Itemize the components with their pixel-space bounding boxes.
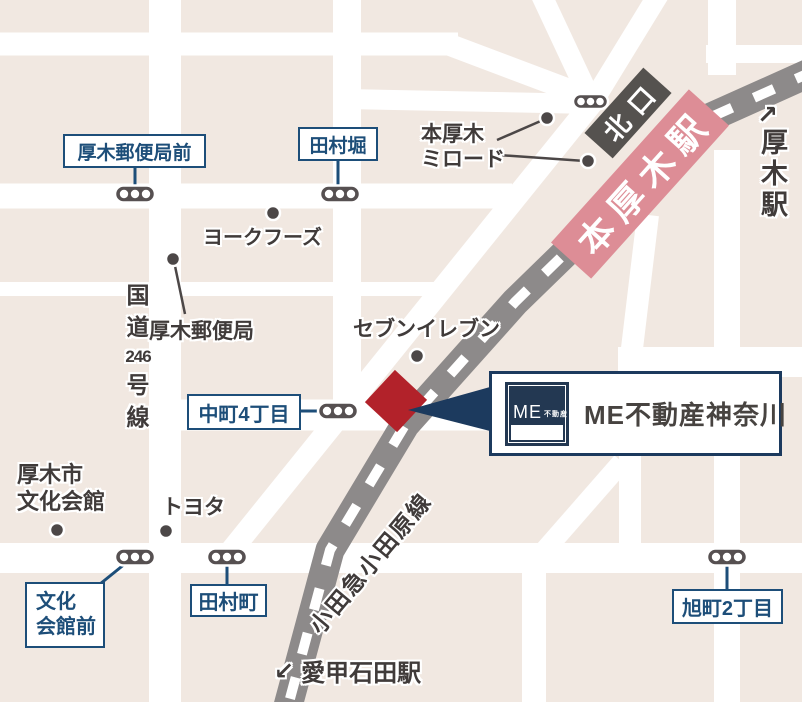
poi-label-bunka-kaikan: 厚木市 文化会館 xyxy=(17,461,105,515)
poi-label-post-office: 厚木郵便局 xyxy=(149,315,254,345)
logo-bottom-bar xyxy=(511,425,563,440)
callout-pointer xyxy=(408,387,490,431)
bus-stop-box-tamuracho: 田村町 xyxy=(190,584,267,617)
route246-char: 号 xyxy=(127,374,150,397)
bus-stop-box-atsugi-yubinkyoku-mae: 厚木郵便局前 xyxy=(63,134,206,168)
access-map: 北口 本厚木駅 小田急小田原線 国 道 246 号 線 ヨークフーズ 厚木郵便局… xyxy=(0,0,802,702)
route246-label: 国 道 246 号 線 xyxy=(119,284,157,429)
poi-dot-seven-eleven xyxy=(410,349,424,363)
bus-stop-icon xyxy=(115,549,155,566)
bus-stop-icon xyxy=(318,403,358,420)
poi-dot-bunka-kaikan xyxy=(50,523,64,537)
bus-stop-box-label: 中町4丁目 xyxy=(198,398,289,427)
bus-stop-box-label: 会館前 xyxy=(36,615,96,640)
bus-stop-box-label: 文化 xyxy=(36,590,76,615)
poi-label-bunka-kaikan-line2: 文化会館 xyxy=(17,488,105,515)
bus-stop-icon xyxy=(573,94,608,109)
poi-label-seven-eleven: セブンイレブン xyxy=(353,313,500,343)
poi-label-toyota: トヨタ xyxy=(162,491,225,521)
me-fudosan-logo: ME 不動産 xyxy=(505,382,569,446)
bus-stop-box-bunka-kaikan-mae: 文化 会館前 xyxy=(25,582,105,648)
poi-label-mylord-line1: 本厚木 xyxy=(421,122,505,147)
office-callout: ME 不動産 ME不動産神奈川 xyxy=(489,371,782,456)
poi-dot-mylord-2 xyxy=(581,154,595,168)
poi-dot-mylord-1 xyxy=(540,111,554,125)
bus-stop-icon xyxy=(320,186,360,203)
poi-dot-toyota xyxy=(159,524,173,538)
poi-dot-post-office xyxy=(166,252,180,266)
street xyxy=(347,99,592,104)
bus-stop-icon xyxy=(207,549,247,566)
office-name: ME不動産神奈川 xyxy=(584,395,787,432)
poi-label-mylord: 本厚木 ミロード xyxy=(421,122,505,172)
route246-char: 国 xyxy=(127,284,150,307)
logo-text-row: ME 不動産 xyxy=(513,403,568,421)
logo-fudosan-text: 不動産 xyxy=(544,409,568,419)
poi-label-mylord-line2: ミロード xyxy=(421,147,505,172)
bus-stop-box-label: 田村町 xyxy=(199,586,259,615)
bus-stop-box-asahicho-2chome: 旭町2丁目 xyxy=(672,589,783,624)
bus-stop-box-label: 厚木郵便局前 xyxy=(77,138,191,165)
logo-me-text: ME xyxy=(513,403,542,421)
bus-stop-box-label: 田村堀 xyxy=(309,131,366,158)
aiko-ishida-arrow-icon: ↙ xyxy=(274,657,294,686)
route246-char: 246 xyxy=(125,348,150,365)
bus-stop-icon xyxy=(707,549,747,566)
atsugi-station-label: 厚木駅 xyxy=(753,128,792,221)
bus-stop-box-nakacho-4chome: 中町4丁目 xyxy=(187,394,301,430)
aiko-ishida-direction: ↙ 愛甲石田駅 xyxy=(274,653,421,688)
poi-dot-york-foods xyxy=(266,206,280,220)
bus-stop-icon xyxy=(115,186,155,203)
bus-stop-box-label: 旭町2丁目 xyxy=(682,592,773,621)
atsugi-direction-arrow-icon: ↗ xyxy=(757,100,778,130)
poi-label-bunka-kaikan-line1: 厚木市 xyxy=(17,461,105,488)
aiko-ishida-label: 愛甲石田駅 xyxy=(301,653,421,688)
route246-char: 道 xyxy=(127,316,150,339)
bus-stop-box-tamurabori: 田村堀 xyxy=(298,127,378,161)
poi-label-york-foods: ヨークフーズ xyxy=(203,221,322,250)
route246-char: 線 xyxy=(127,406,150,429)
